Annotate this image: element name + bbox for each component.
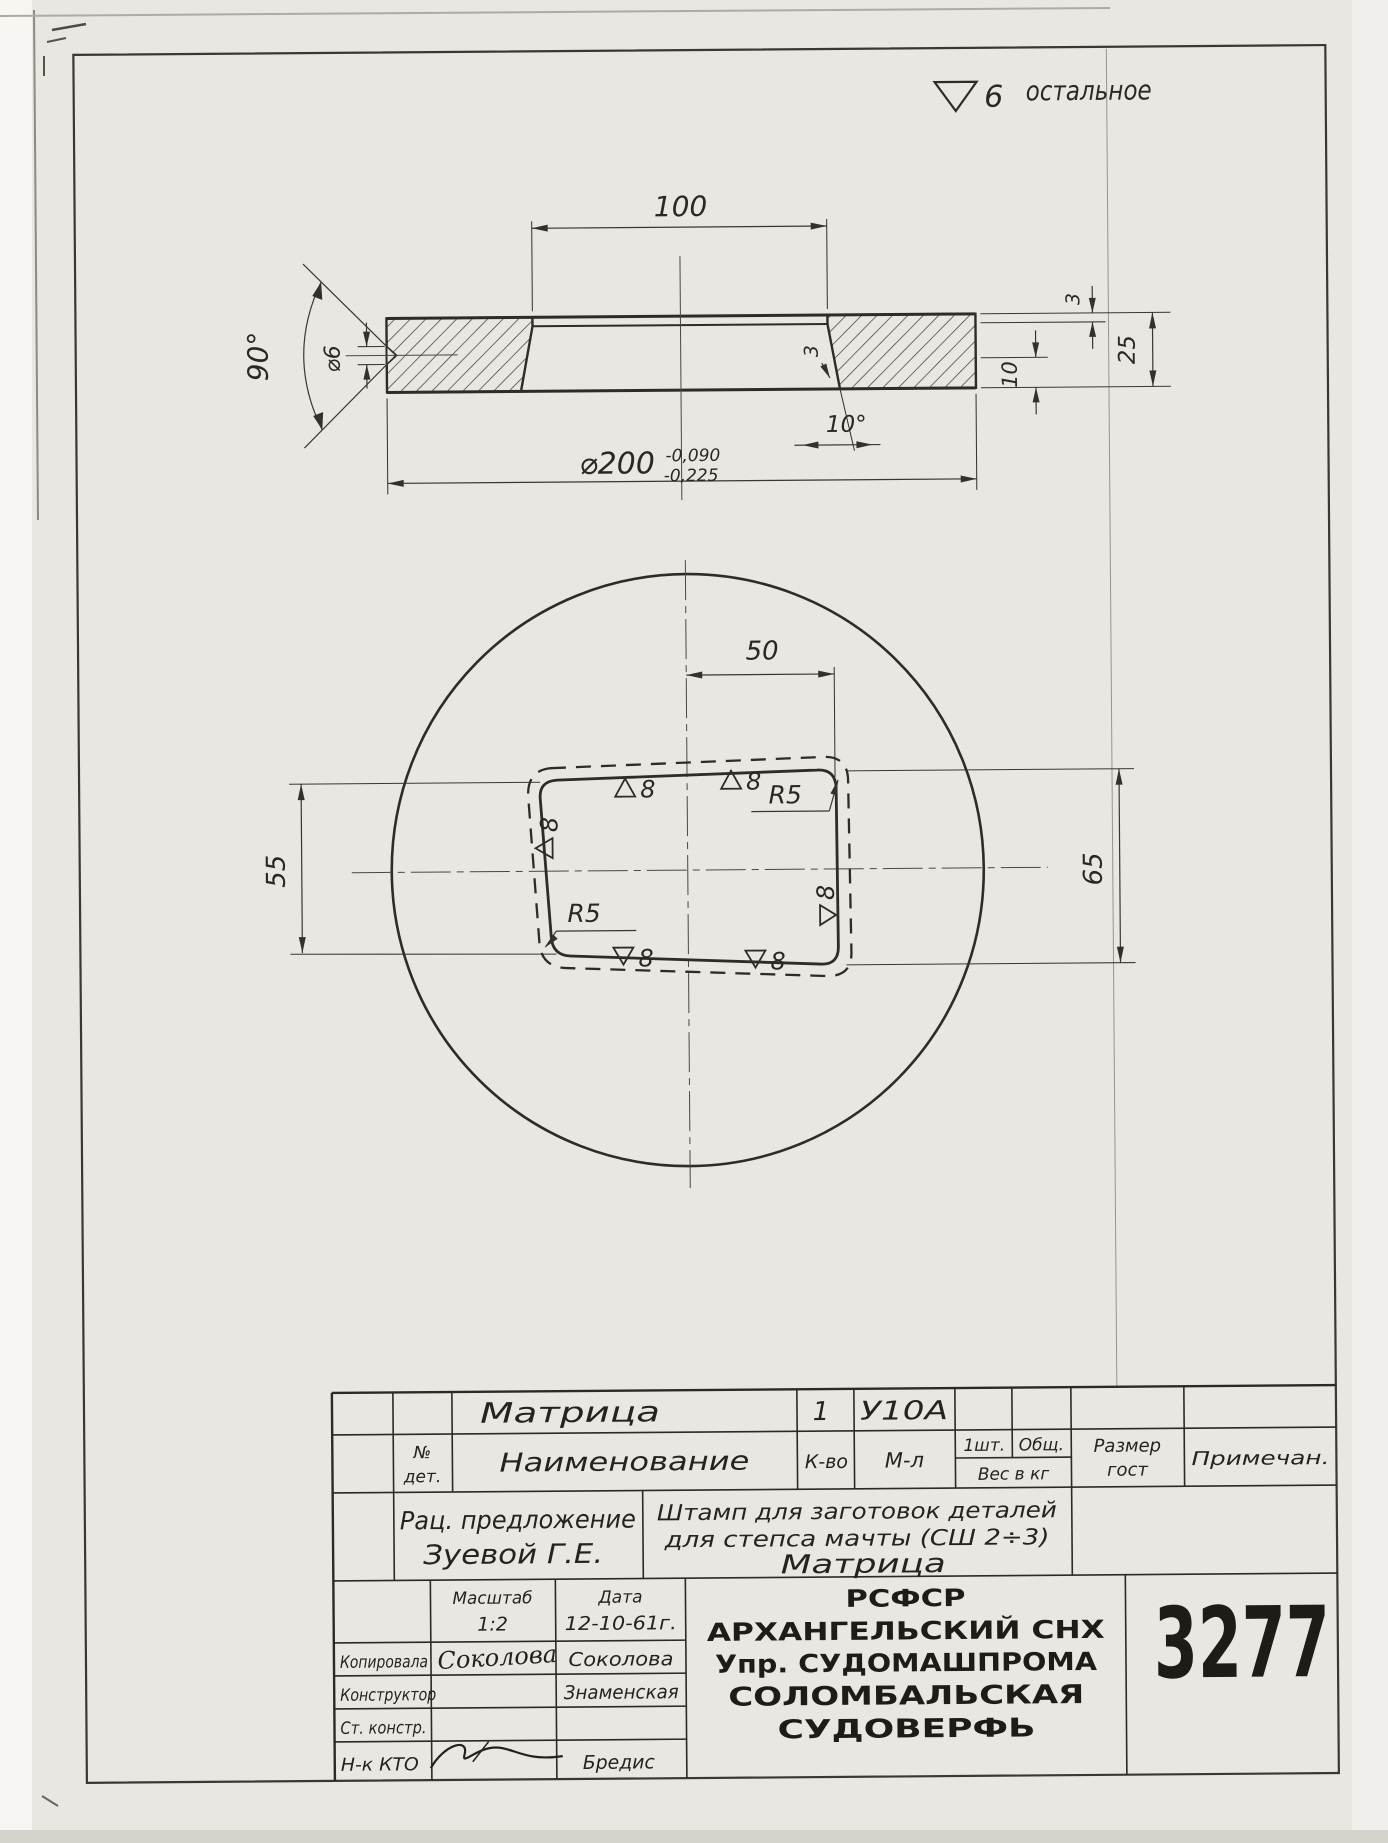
- header-qty: К-во: [805, 1451, 848, 1473]
- paper-background: [0, 0, 1388, 1843]
- header-material: М-л: [885, 1448, 924, 1472]
- date-value: 12-10-61г.: [565, 1612, 677, 1635]
- dim-phi200-label: ⌀200: [579, 446, 655, 482]
- mark-bottom1-value: 8: [638, 944, 654, 972]
- r5-bottom-label: R5: [567, 899, 601, 928]
- proposal-line2: Зуевой Г.Е.: [423, 1539, 603, 1571]
- scale-value: 1:2: [477, 1614, 508, 1636]
- header-size-1: Размер: [1093, 1435, 1161, 1457]
- mark-top1-value: 8: [640, 775, 656, 803]
- dim-55-label: 55: [262, 855, 292, 888]
- finish-grade: 6: [984, 80, 1003, 115]
- org-line3: Упр. СУДОМАШПРОМА: [715, 1647, 1098, 1679]
- tolerance-lower: -0,225: [664, 466, 719, 486]
- dim-3-right-label: 3: [1062, 293, 1084, 305]
- senior-label: Ст. констр.: [340, 1718, 426, 1739]
- page-edge-left: [0, 0, 32, 1843]
- org-line2: АРХАНГЕЛЬСКИЙ СНХ: [707, 1615, 1105, 1647]
- mark-right-value: 8: [812, 885, 840, 901]
- tolerance-upper: -0,090: [665, 446, 720, 466]
- header-note: Примечан.: [1191, 1447, 1329, 1470]
- org-line4: СОЛОМБАЛЬСКАЯ: [728, 1680, 1084, 1713]
- header-weight: Вес в кг: [978, 1464, 1050, 1485]
- mark-left-value: 8: [535, 817, 563, 833]
- header-no-det-1: №: [412, 1443, 431, 1463]
- ext-land: [981, 357, 1048, 358]
- org-line5: СУДОВЕРФЬ: [777, 1713, 1035, 1745]
- material-value: У10А: [860, 1396, 948, 1427]
- section-right-block: [827, 314, 976, 389]
- date-label: Дата: [597, 1587, 642, 1607]
- mark-bottom2-value: 8: [770, 947, 786, 975]
- scale-label: Масштаб: [452, 1588, 532, 1609]
- doc-number: 3277: [1153, 1586, 1330, 1701]
- qty-value: 1: [813, 1397, 830, 1427]
- dim-50-label: 50: [745, 636, 778, 666]
- finish-note-text: остальное: [1026, 75, 1152, 107]
- proposal-line1: Рац. предложение: [400, 1505, 636, 1536]
- org-line1: РСФСР: [845, 1584, 965, 1613]
- dim-3-wall-label: 3: [801, 345, 823, 357]
- page-edge-bottom: [0, 1830, 1388, 1843]
- r5-top-label: R5: [768, 780, 802, 809]
- desc-line3: Матрица: [781, 1549, 946, 1580]
- desc-line1: Штамп для заготовок деталей: [657, 1498, 1057, 1526]
- header-per-item: 1шт.: [963, 1436, 1005, 1456]
- header-no-det-2: дет.: [403, 1467, 442, 1487]
- chief-label: Н-к КТО: [341, 1754, 419, 1776]
- copied-name: Соколова: [568, 1648, 673, 1671]
- chief-name: Бредис: [583, 1751, 656, 1774]
- dim-100-label: 100: [654, 190, 708, 223]
- dim-90-label: 90°: [242, 332, 275, 382]
- designer-label: Конструктор: [340, 1685, 436, 1706]
- part-name: Матрица: [480, 1395, 660, 1429]
- page-edge-right: [1352, 0, 1388, 1843]
- dim-10deg-label: 10°: [826, 412, 867, 438]
- dim-25-label: 25: [1115, 335, 1141, 364]
- designer-name: Знаменская: [564, 1681, 679, 1704]
- mark-top2-value: 8: [746, 768, 762, 796]
- dim-phi6-label: ⌀6: [321, 345, 346, 372]
- copied-label: Копировала: [340, 1652, 428, 1673]
- dim-65-label: 65: [1079, 852, 1109, 885]
- dim-10-label: 10: [998, 361, 1022, 388]
- header-name: Наименование: [499, 1447, 749, 1479]
- header-size-2: гост: [1107, 1459, 1149, 1480]
- header-total: Общ.: [1019, 1435, 1064, 1455]
- drawing-sheet: 6 остальное 100: [0, 0, 1388, 1843]
